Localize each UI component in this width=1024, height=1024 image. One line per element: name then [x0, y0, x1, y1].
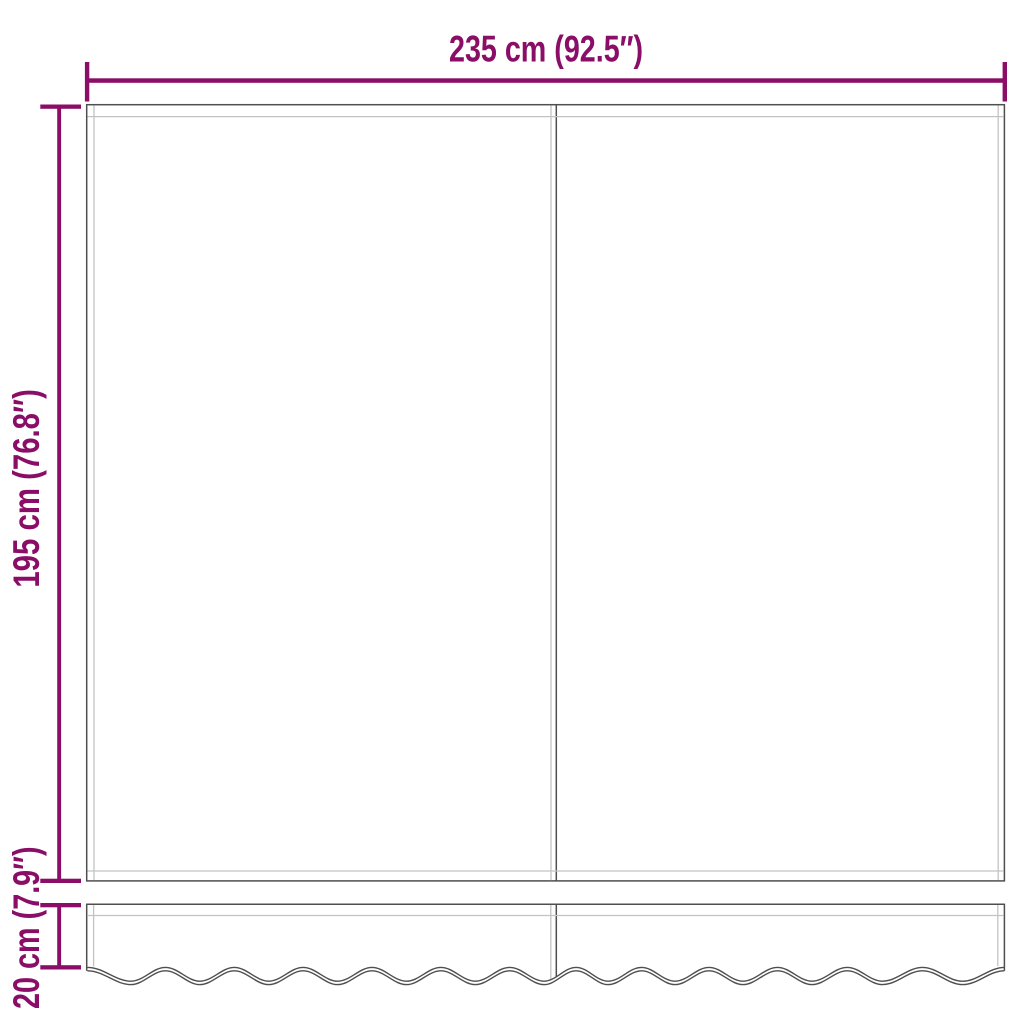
svg-text:235 cm (92.5″): 235 cm (92.5″) [449, 27, 643, 69]
svg-text:20 cm (7.9″): 20 cm (7.9″) [5, 846, 47, 1009]
svg-text:195 cm (76.8″): 195 cm (76.8″) [5, 389, 47, 588]
